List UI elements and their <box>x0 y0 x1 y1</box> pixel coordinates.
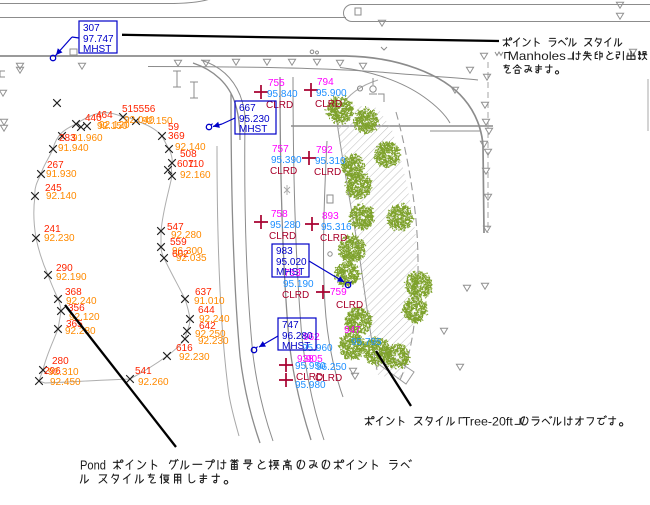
svg-text:92.140: 92.140 <box>46 191 77 202</box>
svg-text:95.280: 95.280 <box>270 220 301 231</box>
svg-text:95.795: 95.795 <box>351 337 382 348</box>
svg-text:92.280: 92.280 <box>65 326 96 337</box>
svg-text:747: 747 <box>282 320 299 331</box>
svg-text:792: 792 <box>316 145 333 156</box>
svg-text:110: 110 <box>188 159 204 170</box>
svg-text:MHST: MHST <box>276 267 304 278</box>
svg-text:Tree-20ft: Tree-20ft <box>463 415 514 429</box>
svg-text:95.390: 95.390 <box>271 155 302 166</box>
svg-text:92.230: 92.230 <box>198 336 229 347</box>
svg-text:947: 947 <box>344 325 361 336</box>
svg-text:MHST: MHST <box>282 341 310 352</box>
svg-text:95.310: 95.310 <box>315 156 346 167</box>
svg-text:893: 893 <box>322 211 339 222</box>
svg-text:757: 757 <box>272 144 289 155</box>
svg-text:541: 541 <box>135 366 152 377</box>
svg-text:794: 794 <box>317 77 334 88</box>
svg-text:92.260: 92.260 <box>138 377 169 388</box>
svg-text:95.190: 95.190 <box>283 279 314 290</box>
svg-text:92.450: 92.450 <box>50 377 81 388</box>
svg-text:CLRD: CLRD <box>270 166 297 177</box>
svg-text:92.160: 92.160 <box>180 170 211 181</box>
svg-text:983: 983 <box>276 246 293 257</box>
svg-text:92.035: 92.035 <box>176 253 207 264</box>
svg-text:MHST: MHST <box>83 44 111 55</box>
svg-text:515556: 515556 <box>122 104 156 115</box>
svg-text:91.940: 91.940 <box>58 143 89 154</box>
svg-text:Manholes: Manholes <box>508 50 566 63</box>
svg-text:Pond: Pond <box>80 458 106 473</box>
svg-text:95.900: 95.900 <box>316 88 347 99</box>
svg-text:95.980: 95.980 <box>295 380 326 391</box>
svg-text:CLRD: CLRD <box>315 99 342 110</box>
svg-text:CLRD: CLRD <box>282 290 309 301</box>
svg-text:MHST: MHST <box>239 124 267 135</box>
svg-text:CLRD: CLRD <box>314 167 341 178</box>
svg-text:CLRD: CLRD <box>269 231 296 242</box>
svg-text:95.840: 95.840 <box>267 89 298 100</box>
svg-text:369: 369 <box>168 131 185 142</box>
svg-text:92.230: 92.230 <box>44 233 75 244</box>
svg-text:758: 758 <box>271 209 288 220</box>
svg-text:CLRD: CLRD <box>320 233 347 244</box>
svg-text:464: 464 <box>96 110 113 121</box>
svg-text:755: 755 <box>268 78 285 89</box>
svg-text:91.930: 91.930 <box>46 169 77 180</box>
svg-text:307: 307 <box>83 23 100 34</box>
svg-text:92.230: 92.230 <box>179 352 210 363</box>
svg-text:667: 667 <box>239 103 256 114</box>
svg-text:92.190: 92.190 <box>56 272 87 283</box>
svg-text:CLRD: CLRD <box>336 300 363 311</box>
svg-text:CLRD: CLRD <box>266 100 293 111</box>
svg-text:95.316: 95.316 <box>321 222 352 233</box>
svg-text:759: 759 <box>330 287 347 298</box>
